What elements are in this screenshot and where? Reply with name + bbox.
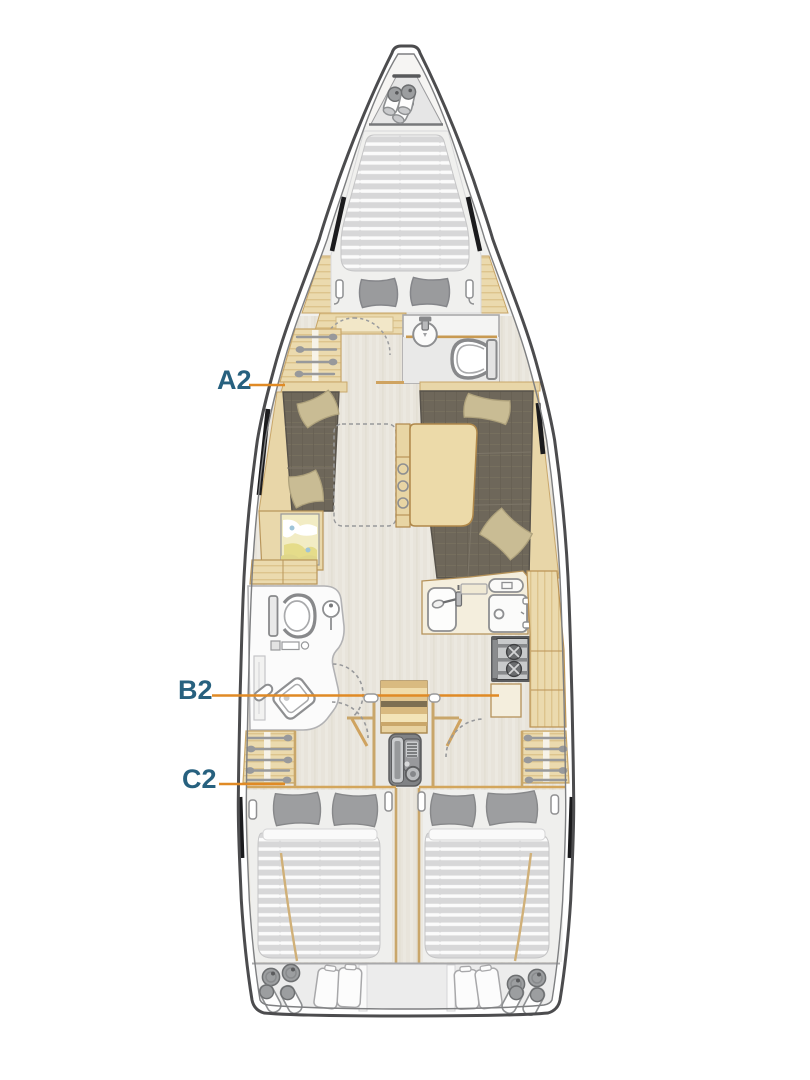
svg-text:B2: B2 <box>178 675 213 705</box>
svg-text:A2: A2 <box>217 365 252 395</box>
svg-text:C2: C2 <box>182 764 217 794</box>
